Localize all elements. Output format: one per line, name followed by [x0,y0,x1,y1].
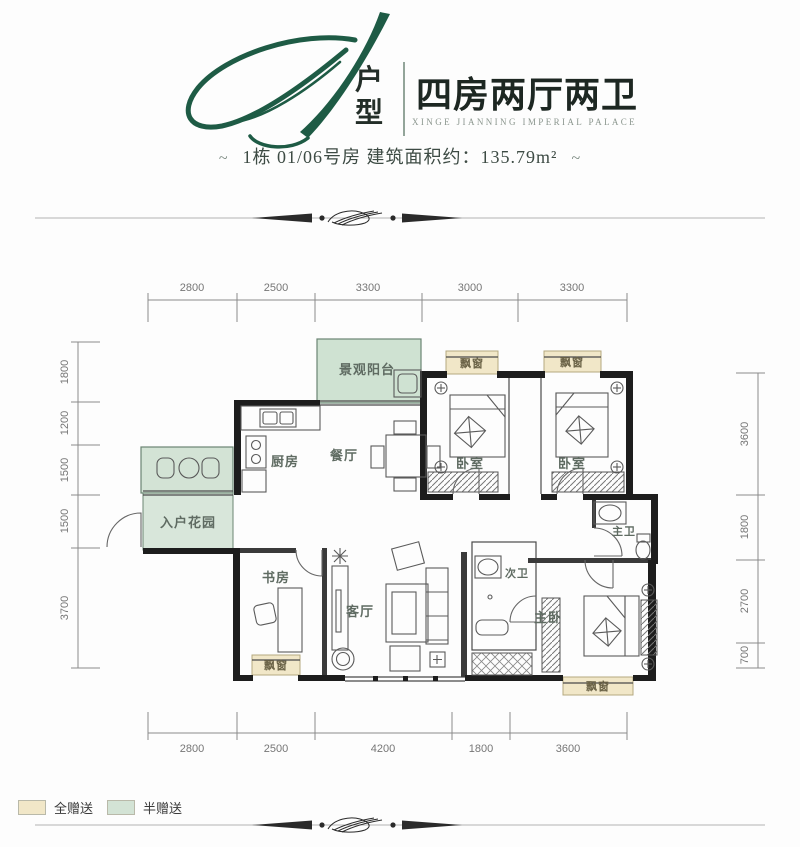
dim-top-2: 2500 [264,282,288,294]
cabinet-below-bath [472,653,532,675]
label-bay-window-1: 飘窗 [460,356,484,370]
entry-door [107,513,141,547]
label-bedroom-1: 卧室 [456,456,484,471]
dim-top-5: 3300 [560,282,584,294]
ornament-divider-top [0,205,800,231]
label-bedroom-2: 卧室 [558,456,586,471]
plan-type-char-1: 户 [352,64,386,97]
study-door [296,550,322,576]
label-master-bedroom: 主卧 [534,610,562,625]
study-furniture [253,588,302,652]
dim-top-3: 3300 [356,282,380,294]
dim-top-1: 2800 [180,282,204,294]
label-living: 客厅 [346,604,374,619]
second-bath-door [510,596,536,622]
label-bay-window-2: 飘窗 [560,355,584,369]
kitchen-counter [241,406,320,492]
dim-left-4: 1500 [59,509,71,533]
plan-type-label: 户 型 [352,64,386,130]
decorative-dash-right: ~ [571,150,581,167]
floorplan-drawing: 景观阳台 厨房 餐厅 卧室 卧室 入户花园 书房 客厅 次卫 主卫 主卧 飘窗 … [0,270,800,770]
dim-bottom-5: 3600 [556,743,580,755]
label-bay-window-4: 飘窗 [586,679,610,693]
header-vertical-divider [403,62,405,136]
dim-right-1: 3600 [739,422,751,446]
subtitle-english: XINGE JIANNING IMPERIAL PALACE [412,117,632,127]
dim-bottom-3: 4200 [371,743,395,755]
label-master-bath: 主卫 [612,524,636,538]
floorplan-poster: 户 型 四房两厅两卫 XINGE JIANNING IMPERIAL PALAC… [0,0,800,847]
building-info-line: ~1栋 01/06号房 建筑面积约：135.79m²~ [0,143,800,169]
ornament-divider-bottom [0,812,800,838]
dim-bottom-1: 2800 [180,743,204,755]
label-balcony: 景观阳台 [339,362,395,377]
page-title: 四房两厅两卫 [416,66,646,118]
label-dining: 餐厅 [329,448,358,463]
interior-walls [240,500,658,677]
label-bay-window-3: 飘窗 [264,658,288,672]
dim-bottom-2: 2500 [264,743,288,755]
label-entry-garden: 入户花园 [160,515,216,530]
label-second-bath: 次卫 [505,566,529,580]
dim-left-3: 1500 [59,458,71,482]
logo-loop [188,38,355,127]
dim-right-4: 700 [739,646,751,664]
dim-left-2: 1200 [59,411,71,435]
dim-bottom-4: 1800 [469,743,493,755]
label-kitchen: 厨房 [271,454,299,469]
building-info: 1栋 01/06号房 建筑面积约：135.79m² [243,147,558,167]
dim-right-3: 2700 [739,589,751,613]
dim-left-5: 3700 [59,596,71,620]
second-bath-fixtures [475,556,508,635]
wardrobe-master [641,600,657,655]
wardrobe-bedroom-1 [428,472,498,492]
plan-type-char-2: 型 [352,97,386,130]
master-bedroom-door [585,560,613,588]
dim-left-1: 1800 [59,360,71,384]
dim-top-4: 3000 [458,282,482,294]
label-study: 书房 [262,570,290,585]
decorative-dash-left: ~ [219,150,229,167]
dim-right-2: 1800 [739,515,751,539]
wardrobe-bedroom-2 [552,472,624,492]
